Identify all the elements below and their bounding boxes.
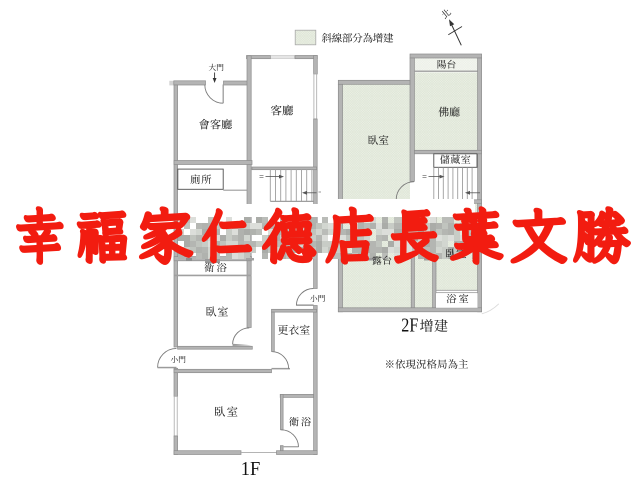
svg-text:2F: 2F [401,315,418,336]
svg-text:1F: 1F [241,459,261,480]
